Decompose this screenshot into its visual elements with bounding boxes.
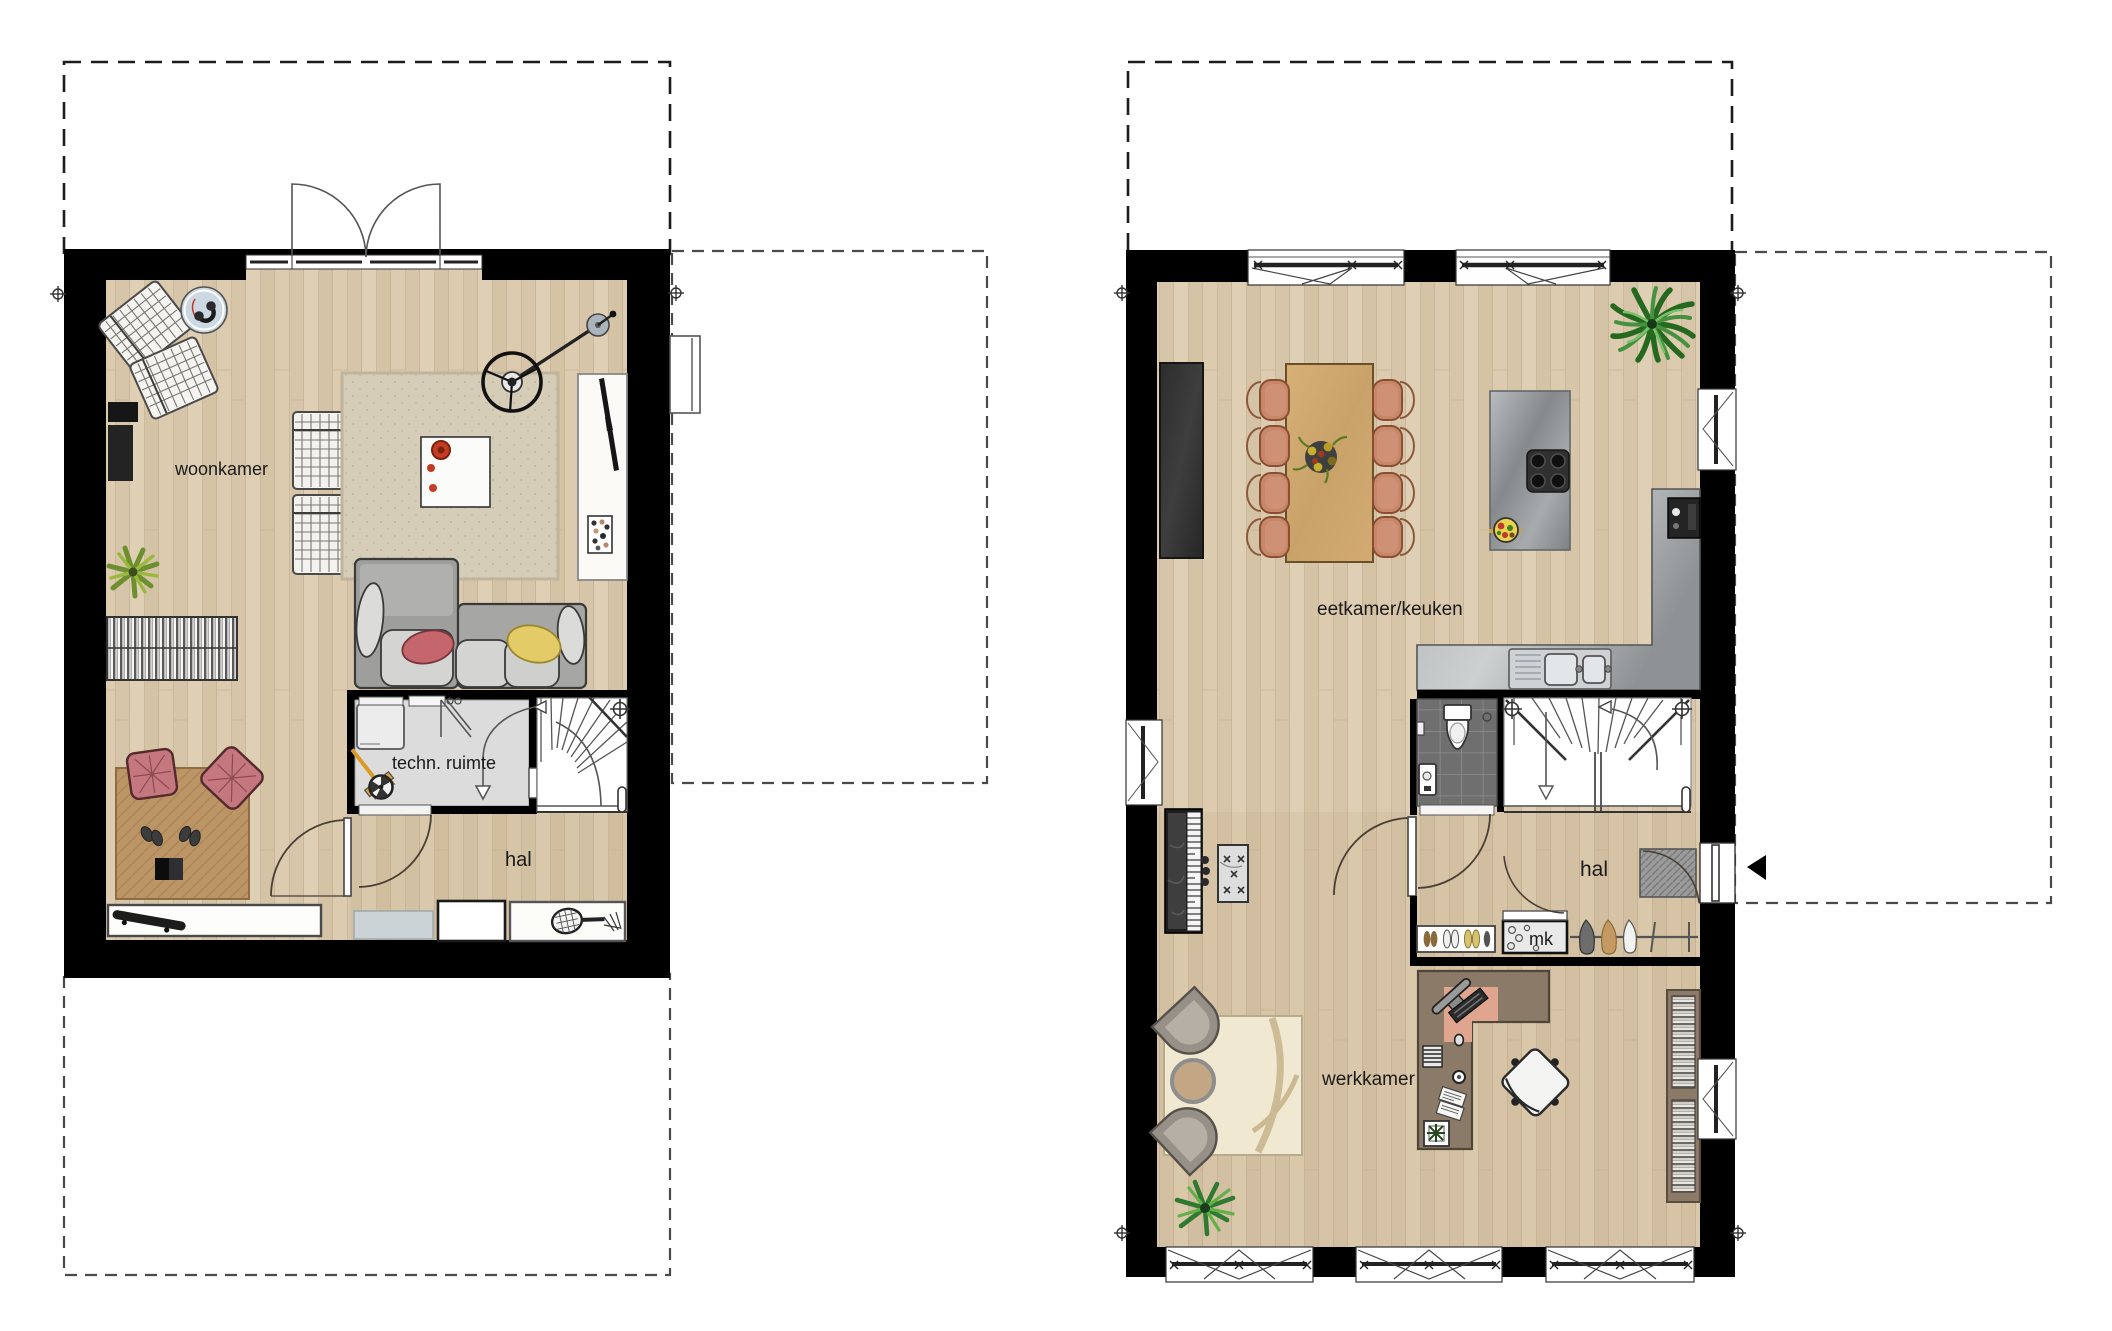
svg-text:techn. ruimte: techn. ruimte — [392, 753, 496, 773]
svg-text:hal: hal — [505, 849, 532, 871]
svg-text:woonkamer: woonkamer — [174, 459, 268, 479]
svg-text:eetkamer/keuken: eetkamer/keuken — [1317, 599, 1463, 620]
svg-text:mk: mk — [1529, 929, 1554, 949]
svg-text:hal: hal — [1580, 858, 1608, 881]
svg-text:werkkamer: werkkamer — [1321, 1069, 1416, 1090]
